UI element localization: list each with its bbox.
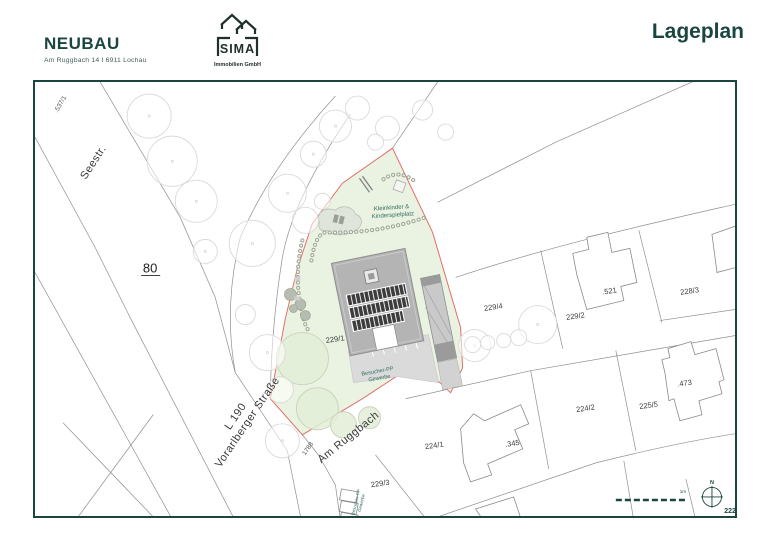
street-parcel-80: 80 bbox=[143, 260, 157, 275]
sima-houses-icon: SIMA Immobilien GmbH bbox=[205, 8, 271, 74]
site-plan-drawing: Seestr. .537/1 80 L 190 Vorarlberger Str… bbox=[35, 82, 735, 516]
parcel-label-228-3: 228/3 bbox=[680, 285, 700, 297]
parcel-label-229-4: 229/4 bbox=[483, 301, 503, 313]
l190-name: Vorarlberger Straße bbox=[213, 375, 282, 470]
site-plan-map: Seestr. .537/1 80 L 190 Vorarlberger Str… bbox=[33, 80, 737, 518]
parcel-label-222-1: 222/1 bbox=[724, 508, 735, 515]
site-plan-page: NEUBAU Am Ruggbach 14 I 6911 Lochau SIMA… bbox=[0, 0, 770, 545]
parcel-label-225-5: 225/5 bbox=[639, 400, 659, 412]
parcel-label-229-3: 229/3 bbox=[370, 478, 390, 490]
parcel-label-537-1: .537/1 bbox=[53, 94, 68, 113]
scale-label: 1m bbox=[680, 489, 686, 494]
parcel-label-224-2: 224/2 bbox=[576, 403, 596, 415]
project-header: NEUBAU Am Ruggbach 14 I 6911 Lochau bbox=[44, 34, 147, 64]
north-label: N bbox=[710, 480, 714, 486]
parcel-label-224-1: 224/1 bbox=[424, 440, 444, 452]
logo-name: SIMA bbox=[220, 42, 255, 56]
evergreen-tree bbox=[300, 311, 310, 321]
page-title: Lageplan bbox=[652, 20, 744, 44]
evergreen-tree bbox=[289, 305, 297, 313]
project-address: Am Ruggbach 14 I 6911 Lochau bbox=[44, 57, 147, 64]
company-logo: SIMA Immobilien GmbH bbox=[205, 8, 271, 79]
street-label-seestr: Seestr. bbox=[78, 143, 109, 181]
parcel-label-229-2: 229/2 bbox=[566, 310, 586, 322]
courtyard bbox=[372, 324, 398, 350]
project-title: NEUBAU bbox=[44, 34, 147, 54]
scale-bar: 1m bbox=[616, 489, 686, 500]
logo-subtitle: Immobilien GmbH bbox=[214, 62, 261, 68]
north-arrow-icon: N bbox=[701, 480, 723, 508]
